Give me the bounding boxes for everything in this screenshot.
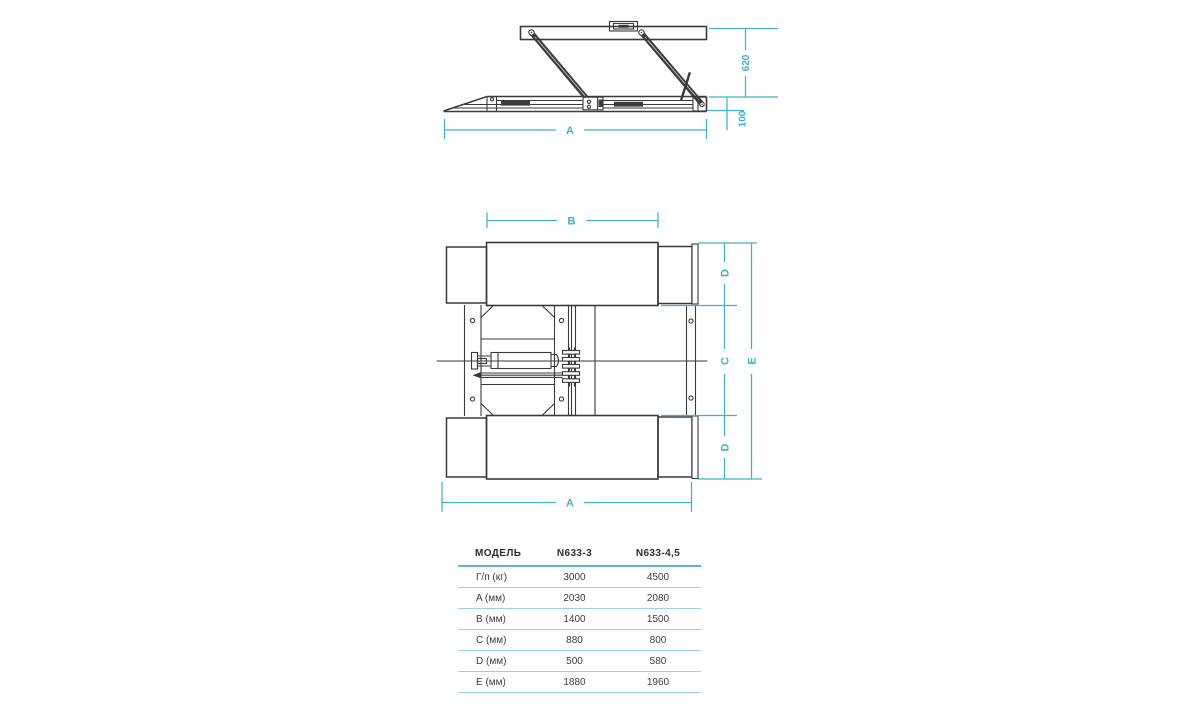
spec-header-n633-3: N633-3 <box>534 541 615 566</box>
spec-value: 2080 <box>615 588 701 609</box>
table-row: C (мм) 880 800 <box>458 630 701 651</box>
spec-header-n633-45: N633-4,5 <box>615 541 701 566</box>
ramp-bottom-right <box>658 417 692 477</box>
control-box <box>610 22 638 32</box>
hydraulic-cylinder <box>472 348 580 386</box>
dim-label-620: 620 <box>741 54 752 71</box>
spec-table-header-row: МОДЕЛЬ N633-3 N633-4,5 <box>458 541 701 566</box>
spec-value: 1960 <box>615 672 701 693</box>
spec-value: 3000 <box>534 566 615 588</box>
base-frame <box>444 97 707 112</box>
ramp-cap-bottom-right <box>692 416 698 479</box>
platform-top <box>487 243 659 306</box>
spec-value: 2030 <box>534 588 615 609</box>
table-row: Г/п (кг) 3000 4500 <box>458 566 701 588</box>
spec-value: 1880 <box>534 672 615 693</box>
dim-label-a-top: A <box>566 498 574 510</box>
spec-row-label: C (мм) <box>458 630 534 651</box>
spec-row-label: D (мм) <box>458 651 534 672</box>
ramp-top-right <box>658 247 692 304</box>
ramp-cap-top-right <box>692 244 698 304</box>
top-view-drawing: B A D C D E <box>437 213 762 513</box>
dim-label-d-top: D <box>720 269 732 277</box>
side-view-dimensions: A 620 100 <box>445 29 779 140</box>
spec-value: 4500 <box>615 566 701 588</box>
dim-label-c: C <box>720 357 732 365</box>
dim-label-e: E <box>747 357 759 364</box>
spec-row-label: Г/п (кг) <box>458 566 534 588</box>
side-view-drawing: A 620 100 <box>444 22 779 140</box>
spec-value: 800 <box>615 630 701 651</box>
spec-value: 880 <box>534 630 615 651</box>
table-row: D (мм) 500 580 <box>458 651 701 672</box>
spec-row-label: B (мм) <box>458 609 534 630</box>
spec-table: МОДЕЛЬ N633-3 N633-4,5 Г/п (кг) 3000 450… <box>458 541 701 693</box>
page: A 620 100 <box>0 0 1200 720</box>
spec-value: 1400 <box>534 609 615 630</box>
top-view-dimensions: B A D C D E <box>442 213 762 513</box>
dim-label-100: 100 <box>738 110 749 127</box>
dim-label-a-side: A <box>566 125 574 137</box>
platform-bottom <box>487 416 659 480</box>
spec-row-label: E (мм) <box>458 672 534 693</box>
dim-label-b: B <box>568 216 576 228</box>
spec-row-label: A (мм) <box>458 588 534 609</box>
spec-value: 500 <box>534 651 615 672</box>
spec-header-model: МОДЕЛЬ <box>458 541 534 566</box>
ramp-top-left <box>447 247 487 303</box>
table-row: B (мм) 1400 1500 <box>458 609 701 630</box>
spec-value: 1500 <box>615 609 701 630</box>
table-row: E (мм) 1880 1960 <box>458 672 701 693</box>
table-row: A (мм) 2030 2080 <box>458 588 701 609</box>
ramp-bottom-left <box>447 418 487 477</box>
dim-label-d-bottom: D <box>720 443 732 451</box>
spec-value: 580 <box>615 651 701 672</box>
